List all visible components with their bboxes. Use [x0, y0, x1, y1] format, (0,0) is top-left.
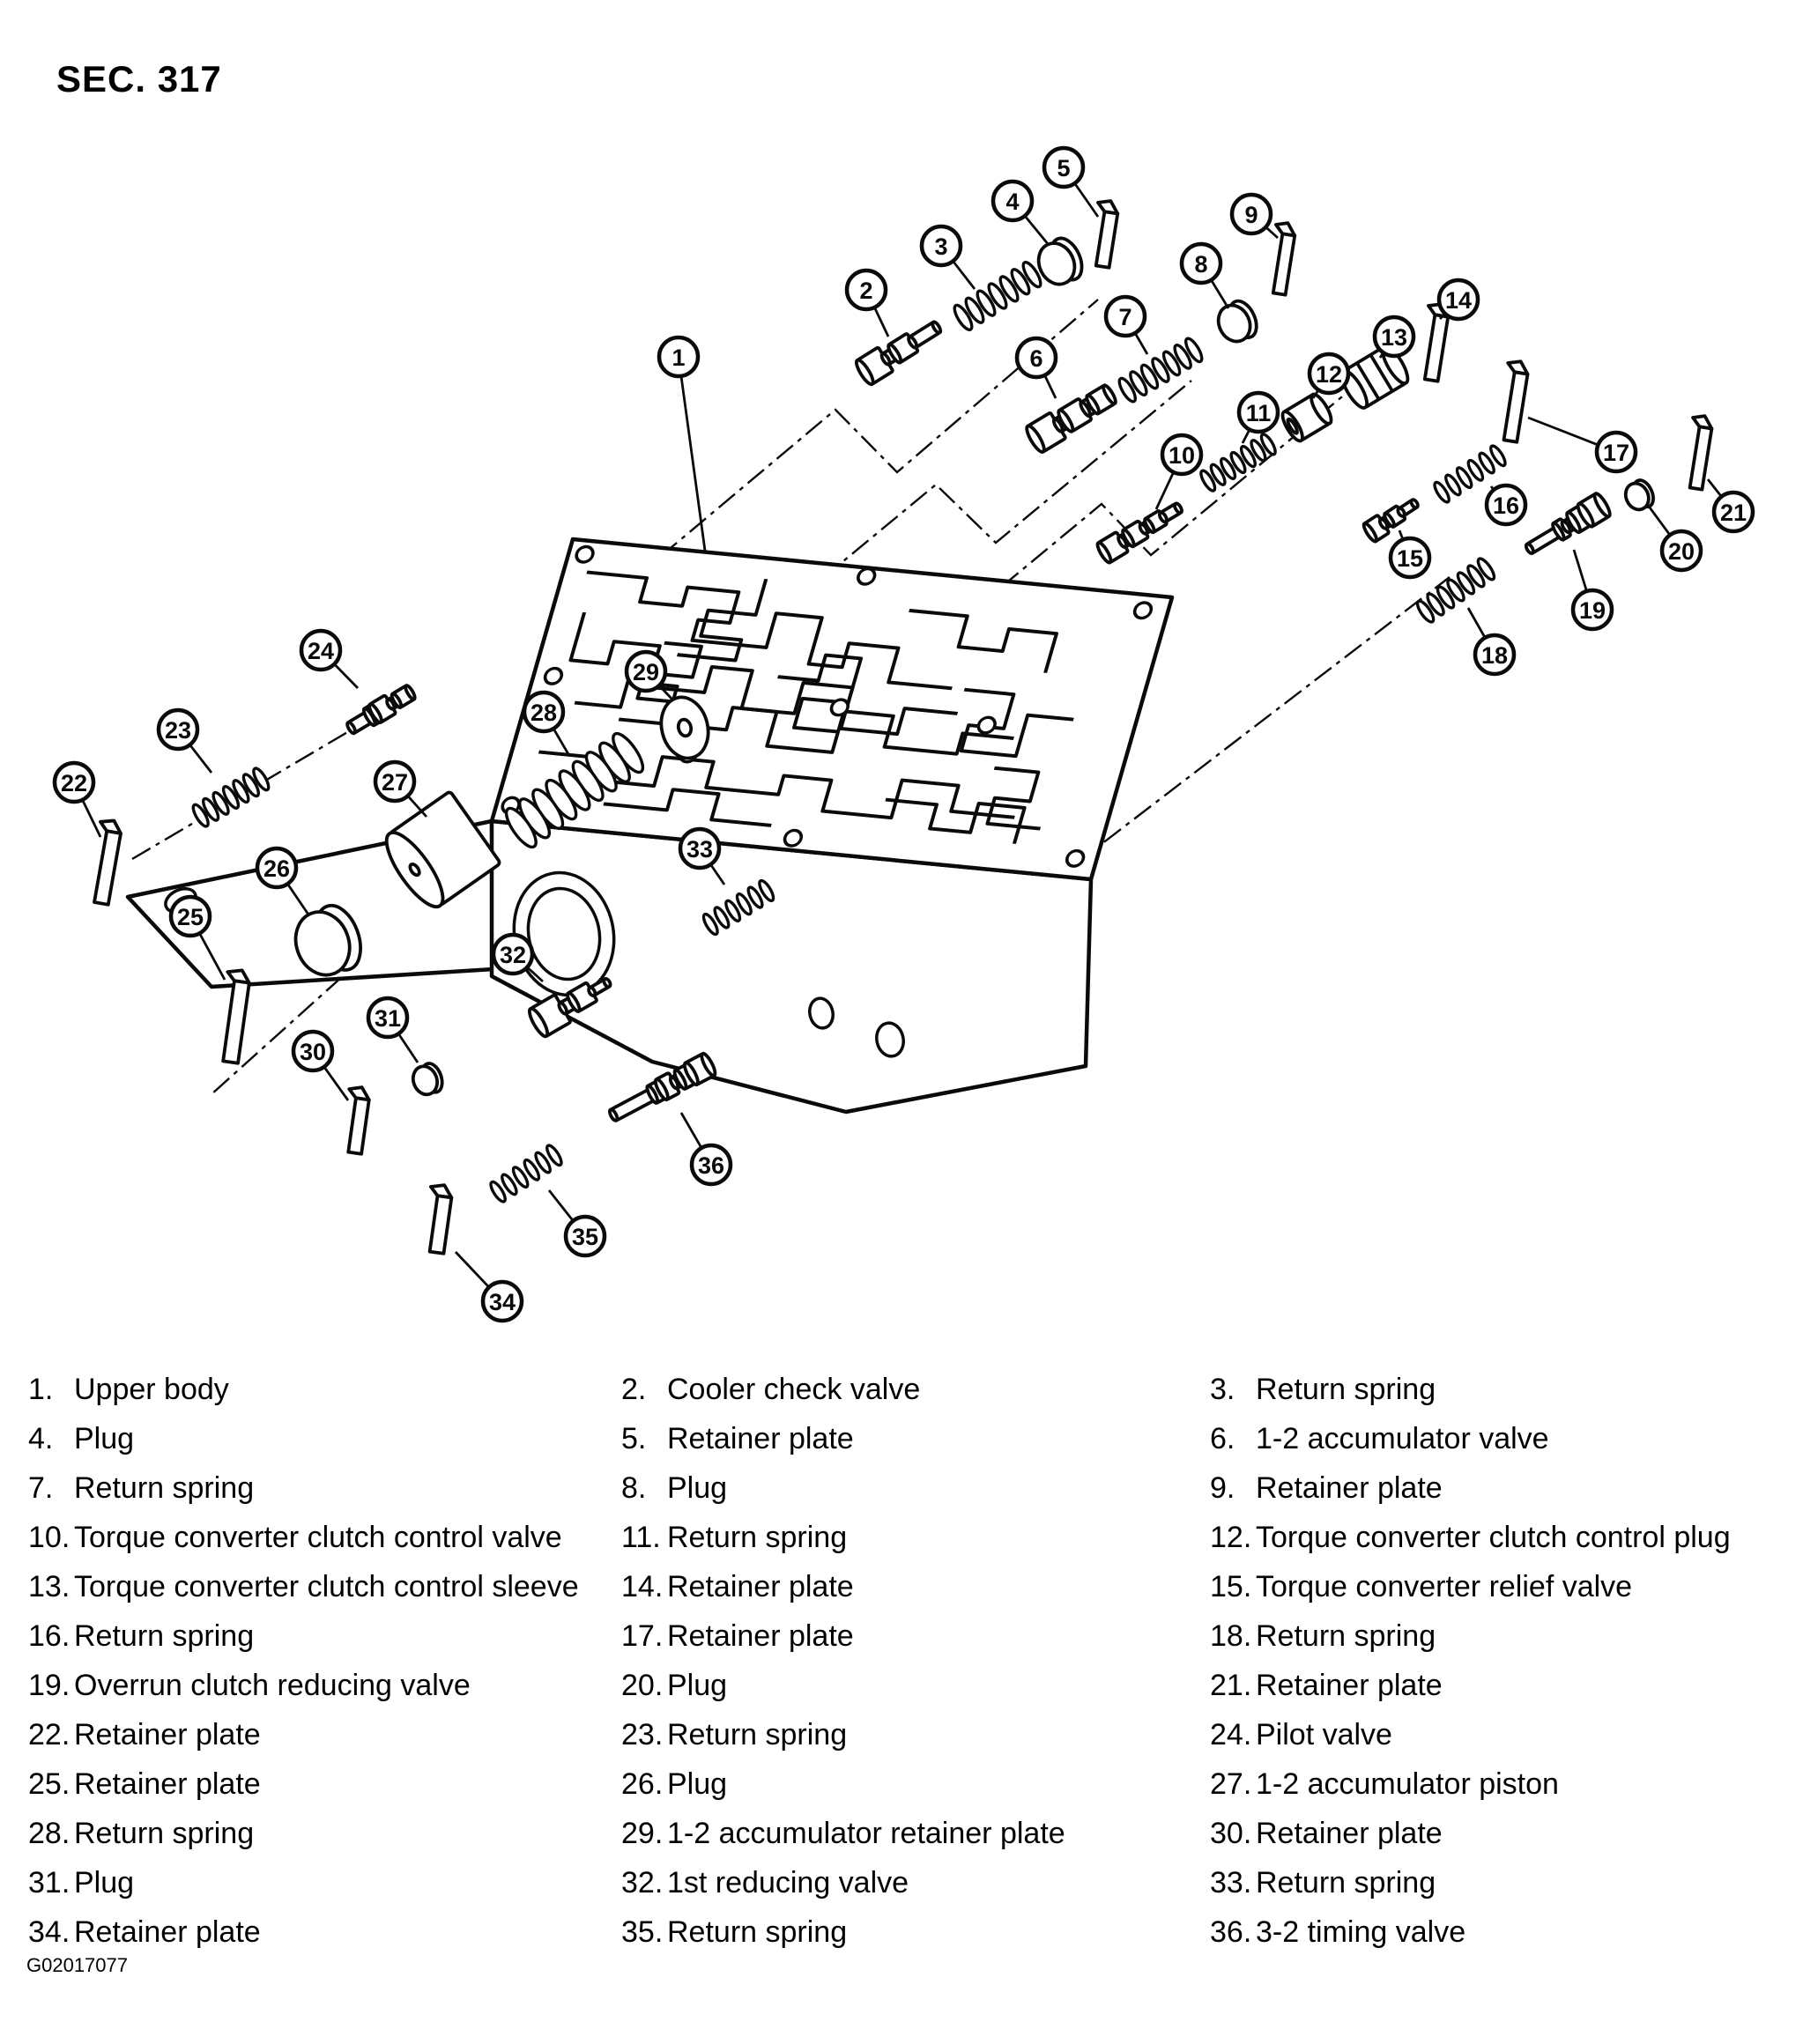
part-number: 35. — [621, 1914, 667, 1950]
callout-number: 24 — [308, 638, 334, 664]
parts-column-1: 1.Upper body4.Plug7.Return spring10.Torq… — [28, 1372, 579, 1964]
leader-line-22 — [83, 801, 100, 837]
part-label: Plug — [74, 1866, 134, 1900]
part-number: 20. — [621, 1668, 667, 1703]
part-number: 26. — [621, 1766, 667, 1802]
part-number: 2. — [621, 1372, 667, 1407]
part-number: 17. — [621, 1618, 667, 1654]
callout-23: 23 — [159, 710, 197, 749]
part-label: Torque converter clutch control valve — [74, 1521, 562, 1554]
part-label: Retainer plate — [74, 1767, 261, 1801]
leader-line-20 — [1650, 507, 1669, 534]
leader-line-9 — [1266, 227, 1278, 238]
callout-number: 4 — [1005, 189, 1019, 215]
callout-15: 15 — [1391, 538, 1429, 577]
callout-number: 15 — [1397, 545, 1423, 572]
parts-list-item: 28.Return spring — [28, 1816, 579, 1865]
parts-list-item: 21.Retainer plate — [1210, 1668, 1731, 1717]
parts-list-item: 16.Return spring — [28, 1618, 579, 1668]
part-number: 34. — [28, 1914, 74, 1950]
callout-number: 29 — [633, 659, 659, 685]
part-label: 1st reducing valve — [667, 1866, 909, 1900]
part-number: 14. — [621, 1569, 667, 1604]
parts-list-item: 5.Retainer plate — [621, 1421, 1065, 1470]
parts-list-item: 3.Return spring — [1210, 1372, 1731, 1421]
callout-number: 21 — [1720, 500, 1747, 526]
callout-number: 35 — [572, 1224, 598, 1250]
part-number: 15. — [1210, 1569, 1256, 1604]
leader-line-35 — [549, 1190, 573, 1220]
parts-list-item: 32.1st reducing valve — [621, 1865, 1065, 1914]
callout-17: 17 — [1597, 433, 1636, 471]
part-number: 31. — [28, 1865, 74, 1900]
part-15 — [1362, 493, 1422, 543]
callout-number: 8 — [1194, 251, 1207, 278]
part-label: Plug — [667, 1669, 727, 1702]
parts-list-item: 22.Retainer plate — [28, 1717, 579, 1766]
parts-list-item: 11.Return spring — [621, 1520, 1065, 1569]
leader-line-5 — [1075, 184, 1098, 217]
part-label: Cooler check valve — [667, 1373, 920, 1406]
leader-line-4 — [1026, 217, 1049, 245]
callout-number: 7 — [1118, 304, 1132, 330]
part-number: 3. — [1210, 1372, 1256, 1407]
part-24 — [344, 682, 418, 738]
part-label: Retainer plate — [74, 1718, 261, 1751]
part-label: Retainer plate — [74, 1915, 261, 1949]
callout-19: 19 — [1573, 590, 1612, 629]
leader-line-1 — [681, 377, 705, 551]
part-label: Overrun clutch reducing valve — [74, 1669, 471, 1702]
callout-13: 13 — [1375, 317, 1413, 356]
callout-26: 26 — [257, 848, 296, 887]
leader-line-24 — [335, 664, 358, 688]
part-label: Return spring — [74, 1817, 254, 1850]
part-label: Torque converter clutch control plug — [1256, 1521, 1731, 1554]
part-label: Return spring — [667, 1915, 847, 1949]
part-number: 24. — [1210, 1717, 1256, 1752]
leader-line-17 — [1528, 418, 1598, 445]
callout-number: 13 — [1381, 324, 1407, 351]
parts-list-item: 36.3-2 timing valve — [1210, 1914, 1731, 1964]
parts-list-item: 1.Upper body — [28, 1372, 579, 1421]
callout-24: 24 — [301, 631, 340, 670]
parts-list-item: 15.Torque converter relief valve — [1210, 1569, 1731, 1618]
callout-number: 22 — [61, 770, 87, 796]
callout-number: 31 — [375, 1005, 401, 1032]
part-number: 18. — [1210, 1618, 1256, 1654]
callout-8: 8 — [1182, 244, 1221, 283]
callout-number: 1 — [671, 344, 685, 371]
leader-line-11 — [1243, 430, 1249, 443]
part-number: 23. — [621, 1717, 667, 1752]
part-number: 1. — [28, 1372, 74, 1407]
part-number: 12. — [1210, 1520, 1256, 1555]
parts-list-item: 17.Retainer plate — [621, 1618, 1065, 1668]
parts-list-item: 25.Retainer plate — [28, 1766, 579, 1816]
leader-line-15 — [1399, 530, 1403, 539]
part-label: Retainer plate — [667, 1570, 854, 1603]
part-10 — [1095, 497, 1186, 564]
part-1-upper-body — [128, 539, 1172, 1112]
callout-number: 19 — [1579, 597, 1606, 624]
part-number: 32. — [621, 1865, 667, 1900]
part-label: Retainer plate — [667, 1619, 854, 1653]
callout-34: 34 — [483, 1282, 522, 1321]
callout-3: 3 — [922, 226, 961, 265]
callout-number: 12 — [1316, 361, 1342, 388]
part-21 — [1682, 414, 1714, 490]
callout-2: 2 — [847, 270, 886, 309]
part-8 — [1213, 297, 1262, 347]
callout-number: 30 — [300, 1039, 326, 1065]
page: SEC. 317 1234567891011121314151617181920… — [0, 0, 1803, 2044]
parts-list-item: 8.Plug — [621, 1470, 1065, 1520]
part-label: Pilot valve — [1256, 1718, 1392, 1751]
part-17 — [1496, 359, 1530, 442]
part-label: Return spring — [1256, 1619, 1436, 1653]
leader-line-19 — [1574, 550, 1586, 590]
part-label: 1-2 accumulator valve — [1256, 1422, 1549, 1455]
part-number: 28. — [28, 1816, 74, 1851]
part-number: 7. — [28, 1470, 74, 1506]
leader-line-21 — [1708, 479, 1721, 496]
part-number: 29. — [621, 1816, 667, 1851]
part-number: 6. — [1210, 1421, 1256, 1456]
part-label: Upper body — [74, 1373, 229, 1406]
leader-line-2 — [875, 308, 888, 337]
parts-list-item: 33.Return spring — [1210, 1865, 1731, 1914]
callout-4: 4 — [993, 181, 1032, 220]
parts-column-2: 2.Cooler check valve5.Retainer plate8.Pl… — [621, 1372, 1065, 1964]
part-number: 30. — [1210, 1816, 1256, 1851]
parts-list-item: 20.Plug — [621, 1668, 1065, 1717]
callout-16: 16 — [1487, 485, 1525, 524]
leader-line-7 — [1136, 334, 1147, 354]
callout-number: 33 — [686, 836, 713, 863]
leader-line-31 — [399, 1034, 418, 1063]
part-number: 27. — [1210, 1766, 1256, 1802]
callout-33: 33 — [680, 829, 719, 868]
part-label: 1-2 accumulator retainer plate — [667, 1817, 1065, 1850]
part-label: Retainer plate — [1256, 1471, 1443, 1505]
part-number: 11. — [621, 1520, 667, 1555]
part-number: 21. — [1210, 1668, 1256, 1703]
part-number: 10. — [28, 1520, 74, 1555]
parts-list-item: 27.1-2 accumulator piston — [1210, 1766, 1731, 1816]
callout-9: 9 — [1232, 195, 1271, 233]
callout-36: 36 — [692, 1145, 731, 1184]
part-label: Plug — [667, 1767, 727, 1801]
part-7 — [1117, 337, 1205, 404]
callout-number: 14 — [1445, 287, 1472, 314]
callout-number: 23 — [165, 717, 191, 744]
parts-list-item: 30.Retainer plate — [1210, 1816, 1731, 1865]
leader-line-30 — [324, 1068, 348, 1100]
callout-10: 10 — [1162, 435, 1201, 474]
part-label: Plug — [74, 1422, 134, 1455]
callout-number: 34 — [489, 1289, 516, 1315]
callout-number: 26 — [263, 855, 290, 882]
part-label: Return spring — [1256, 1373, 1436, 1406]
part-number: 4. — [28, 1421, 74, 1456]
leader-line-36 — [681, 1113, 701, 1147]
callout-25: 25 — [171, 897, 210, 936]
leader-line-23 — [190, 745, 211, 773]
callout-number: 20 — [1668, 538, 1695, 565]
part-number: 9. — [1210, 1470, 1256, 1506]
leader-line-34 — [456, 1252, 488, 1286]
callout-31: 31 — [368, 998, 407, 1037]
part-label: Return spring — [667, 1718, 847, 1751]
callout-number: 18 — [1481, 642, 1508, 669]
callout-5: 5 — [1044, 148, 1083, 187]
callout-29: 29 — [627, 652, 665, 691]
callout-18: 18 — [1475, 635, 1514, 674]
part-6 — [1024, 380, 1120, 454]
part-number: 22. — [28, 1717, 74, 1752]
callout-number: 10 — [1169, 442, 1195, 469]
part-number: 5. — [621, 1421, 667, 1456]
part-3 — [952, 260, 1044, 332]
callout-number: 32 — [500, 942, 526, 968]
parts-list-item: 19.Overrun clutch reducing valve — [28, 1668, 579, 1717]
callout-22: 22 — [55, 763, 93, 802]
parts-list-item: 6.1-2 accumulator valve — [1210, 1421, 1731, 1470]
callout-number: 9 — [1244, 202, 1258, 228]
callout-7: 7 — [1106, 297, 1145, 336]
callout-12: 12 — [1310, 354, 1348, 393]
parts-column-3: 3.Return spring6.1-2 accumulator valve9.… — [1210, 1372, 1731, 1964]
part-number: 36. — [1210, 1914, 1256, 1950]
callout-20: 20 — [1662, 531, 1701, 570]
parts-list-item: 35.Return spring — [621, 1914, 1065, 1964]
parts-list-item: 13.Torque converter clutch control sleev… — [28, 1569, 579, 1618]
parts-list-item: 14.Retainer plate — [621, 1569, 1065, 1618]
part-label: Plug — [667, 1471, 727, 1505]
callout-35: 35 — [566, 1217, 605, 1255]
callout-number: 17 — [1603, 440, 1629, 466]
parts-list-item: 10.Torque converter clutch control valve — [28, 1520, 579, 1569]
part-number: 16. — [28, 1618, 74, 1654]
callout-11: 11 — [1239, 393, 1278, 432]
leader-line-8 — [1212, 281, 1228, 308]
callout-number: 11 — [1246, 400, 1272, 426]
parts-list-item: 7.Return spring — [28, 1470, 579, 1520]
part-label: Retainer plate — [667, 1422, 854, 1455]
callout-number: 2 — [859, 278, 872, 304]
part-number: 33. — [1210, 1865, 1256, 1900]
part-label: 3-2 timing valve — [1256, 1915, 1465, 1949]
part-19 — [1521, 492, 1613, 561]
callout-30: 30 — [293, 1032, 332, 1070]
callout-number: 28 — [531, 700, 557, 726]
callout-number: 3 — [934, 233, 947, 260]
part-22 — [86, 818, 122, 905]
callout-6: 6 — [1017, 338, 1056, 377]
part-12 — [1279, 392, 1334, 444]
callout-number: 36 — [698, 1152, 724, 1179]
part-23 — [190, 766, 271, 828]
callout-number: 25 — [177, 904, 204, 930]
parts-list-item: 18.Return spring — [1210, 1618, 1731, 1668]
parts-list-item: 2.Cooler check valve — [621, 1372, 1065, 1421]
part-label: Return spring — [74, 1471, 254, 1505]
part-label: Torque converter clutch control sleeve — [74, 1570, 579, 1603]
parts-list-item: 31.Plug — [28, 1865, 579, 1914]
part-label: Torque converter relief valve — [1256, 1570, 1632, 1603]
callout-14: 14 — [1439, 280, 1478, 319]
parts-list-item: 26.Plug — [621, 1766, 1065, 1816]
part-2 — [854, 314, 946, 386]
part-label: Retainer plate — [1256, 1669, 1443, 1702]
leader-line-18 — [1468, 608, 1485, 637]
callout-21: 21 — [1714, 492, 1753, 531]
part-number: 19. — [28, 1668, 74, 1703]
part-label: Return spring — [74, 1619, 254, 1653]
parts-list-item: 12.Torque converter clutch control plug — [1210, 1520, 1731, 1569]
callout-number: 27 — [382, 769, 408, 796]
leader-line-6 — [1045, 376, 1056, 398]
callout-1: 1 — [659, 337, 698, 376]
parts-list-item: 4.Plug — [28, 1421, 579, 1470]
leader-line-10 — [1156, 473, 1173, 509]
parts-list-item: 29.1-2 accumulator retainer plate — [621, 1816, 1065, 1865]
callout-27: 27 — [375, 762, 414, 801]
figure-code: G02017077 — [26, 1954, 128, 1977]
parts-list-item: 23.Return spring — [621, 1717, 1065, 1766]
callout-32: 32 — [493, 935, 532, 974]
callout-28: 28 — [524, 692, 563, 731]
callout-number: 6 — [1029, 345, 1042, 372]
part-34 — [422, 1183, 453, 1254]
part-number: 8. — [621, 1470, 667, 1506]
part-label: Retainer plate — [1256, 1817, 1443, 1850]
part-number: 25. — [28, 1766, 74, 1802]
part-label: Return spring — [1256, 1866, 1436, 1900]
parts-list-item: 9.Retainer plate — [1210, 1470, 1731, 1520]
part-31 — [409, 1061, 446, 1099]
callout-number: 5 — [1057, 155, 1070, 181]
part-label: Return spring — [667, 1521, 847, 1554]
callout-number: 16 — [1493, 492, 1519, 519]
leader-line-3 — [953, 262, 975, 289]
part-number: 13. — [28, 1569, 74, 1604]
part-label: 1-2 accumulator piston — [1256, 1767, 1559, 1801]
parts-list-item: 24.Pilot valve — [1210, 1717, 1731, 1766]
